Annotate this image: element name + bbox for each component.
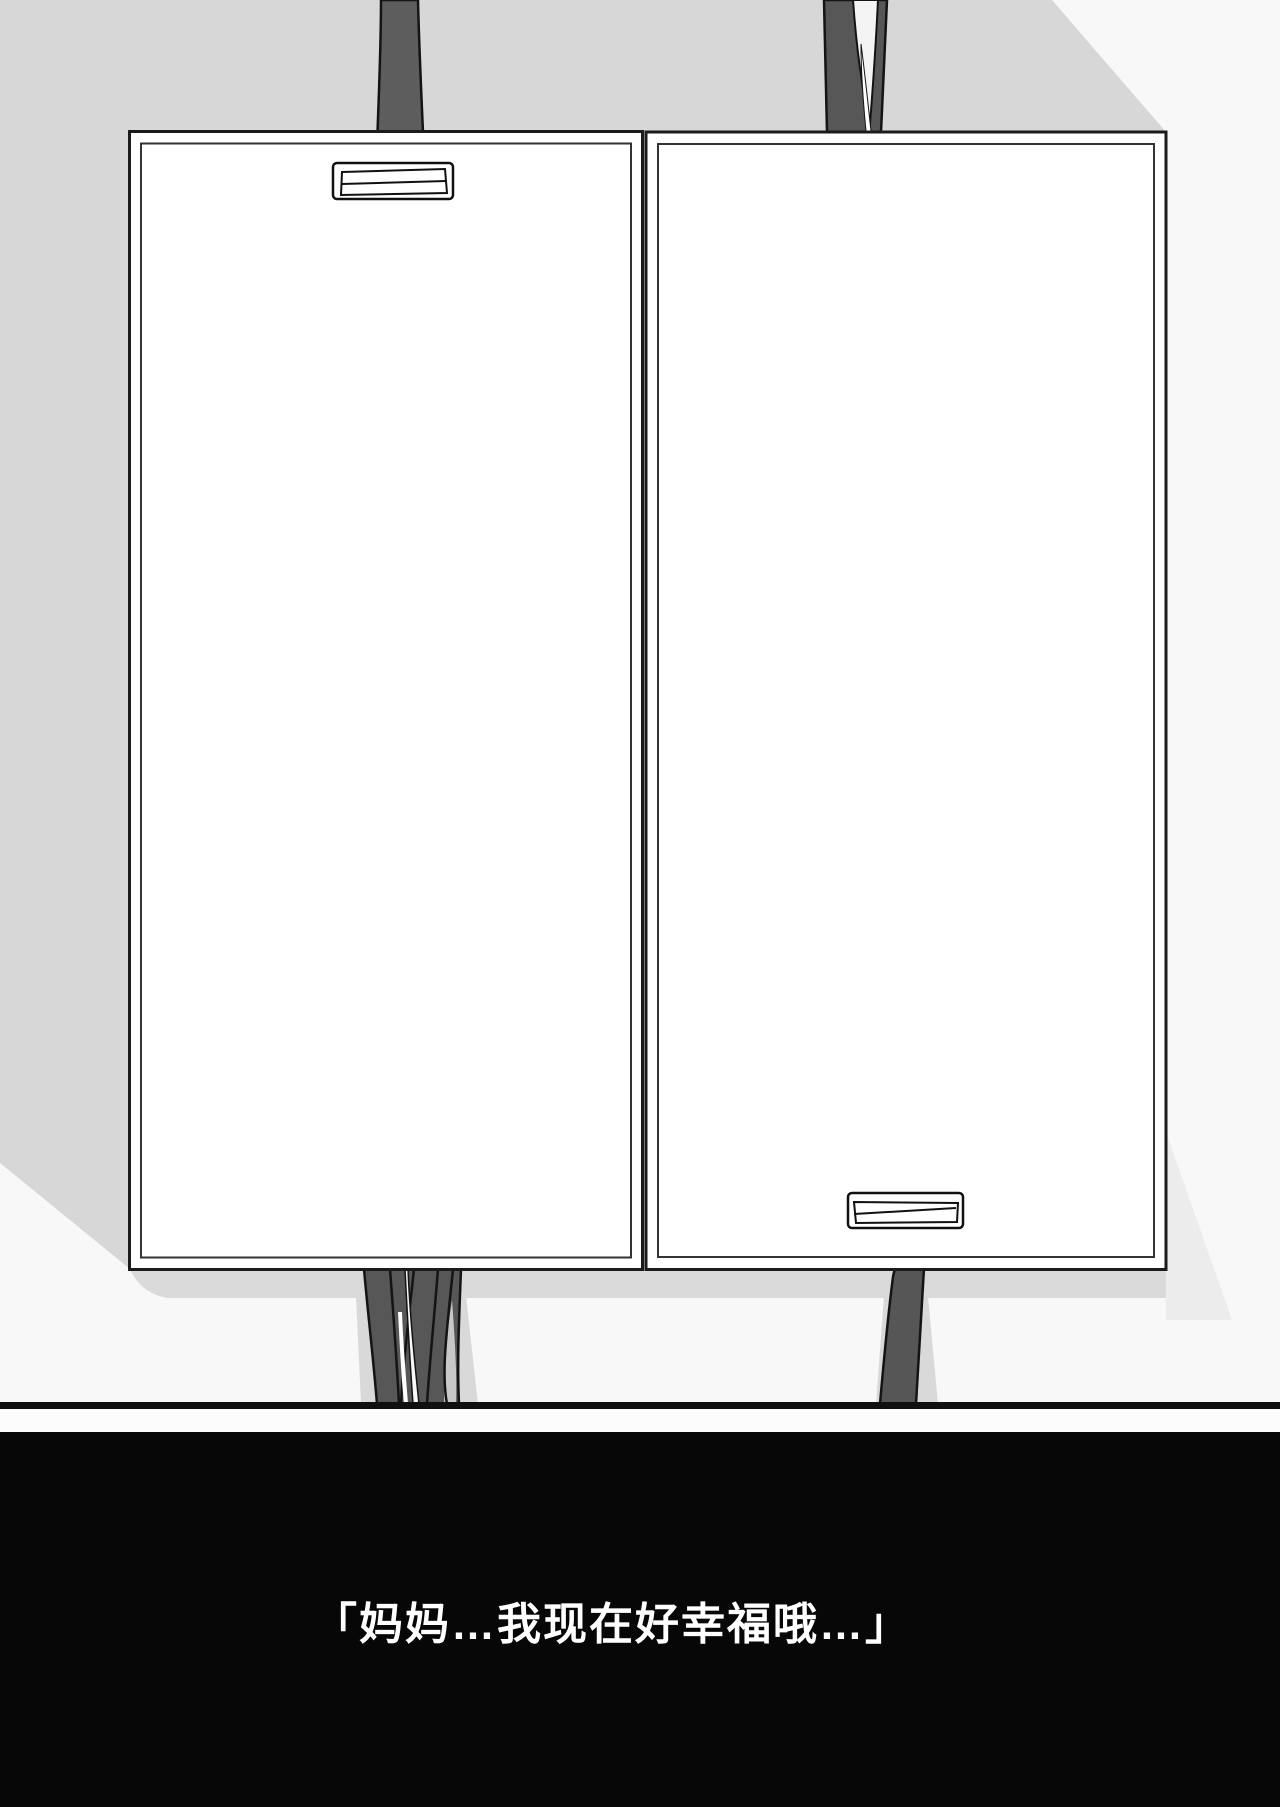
right-panel [646,132,1166,1270]
caption-text: 「妈妈…我现在好幸福哦…」 [313,1588,911,1652]
floor-shadow-band [130,1269,1166,1298]
bottom-left-strap [364,1269,461,1404]
right-panel-handle [848,1193,963,1228]
comic-page: 「妈妈…我现在好幸福哦…」 [0,0,1280,1807]
floor-line [0,1402,1280,1409]
top-left-strap [378,0,424,132]
gap-strip [0,1409,1280,1432]
left-panel [130,132,643,1270]
top-right-strap [824,0,887,132]
caption-band: 「妈妈…我现在好幸福哦…」 [0,1432,1280,1807]
left-panel-handle [333,163,453,199]
